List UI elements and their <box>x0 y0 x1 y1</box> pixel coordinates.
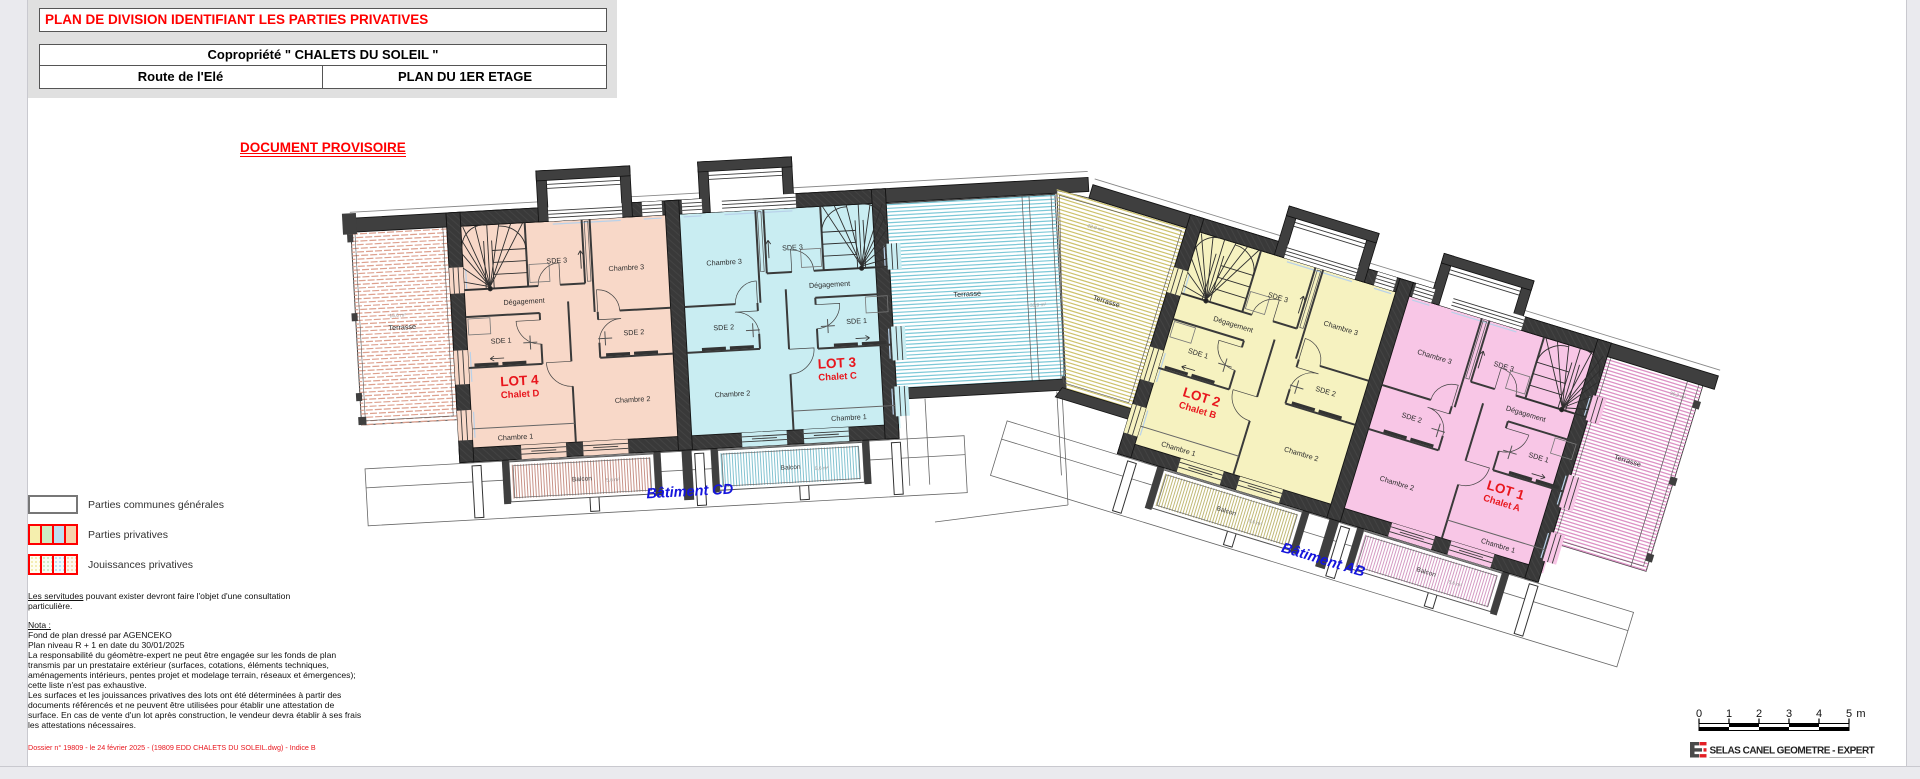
svg-text:SDE 2: SDE 2 <box>713 322 734 332</box>
svg-text:SDE 3: SDE 3 <box>546 255 567 265</box>
svg-text:Balcon: Balcon <box>572 475 593 483</box>
svg-text:Bâtiment CD: Bâtiment CD <box>646 482 734 503</box>
svg-text:5: 5 <box>1846 708 1852 720</box>
svg-text:SDE 2: SDE 2 <box>623 327 644 337</box>
svg-text:SDE 3: SDE 3 <box>782 242 803 252</box>
svg-text:0: 0 <box>1696 708 1702 720</box>
svg-text:SELAS CANEL GEOMETRE - EXPERT: SELAS CANEL GEOMETRE - EXPERT <box>1710 745 1875 756</box>
svg-text:SDE 1: SDE 1 <box>491 336 512 346</box>
svg-text:SDE 1: SDE 1 <box>846 316 867 326</box>
svg-text:33,9 m²: 33,9 m² <box>1030 302 1047 309</box>
svg-text:4: 4 <box>1816 708 1822 720</box>
svg-text:LOT 3: LOT 3 <box>817 355 857 372</box>
svg-text:1: 1 <box>1726 708 1732 720</box>
svg-text:LOT 4: LOT 4 <box>500 372 540 389</box>
svg-text:5,6 m²: 5,6 m² <box>606 477 620 484</box>
svg-text:3: 3 <box>1786 708 1792 720</box>
svg-text:Terrasse: Terrasse <box>953 289 981 300</box>
svg-text:Balcon: Balcon <box>781 464 802 472</box>
svg-text:15,6 m²: 15,6 m² <box>389 312 406 319</box>
svg-text:Chalet D: Chalet D <box>501 388 540 401</box>
svg-text:Terrasse: Terrasse <box>388 322 416 333</box>
svg-text:5,6 m²: 5,6 m² <box>815 465 829 472</box>
svg-text:m: m <box>1856 708 1865 720</box>
svg-text:2: 2 <box>1756 708 1762 720</box>
svg-text:Chalet C: Chalet C <box>818 371 857 384</box>
